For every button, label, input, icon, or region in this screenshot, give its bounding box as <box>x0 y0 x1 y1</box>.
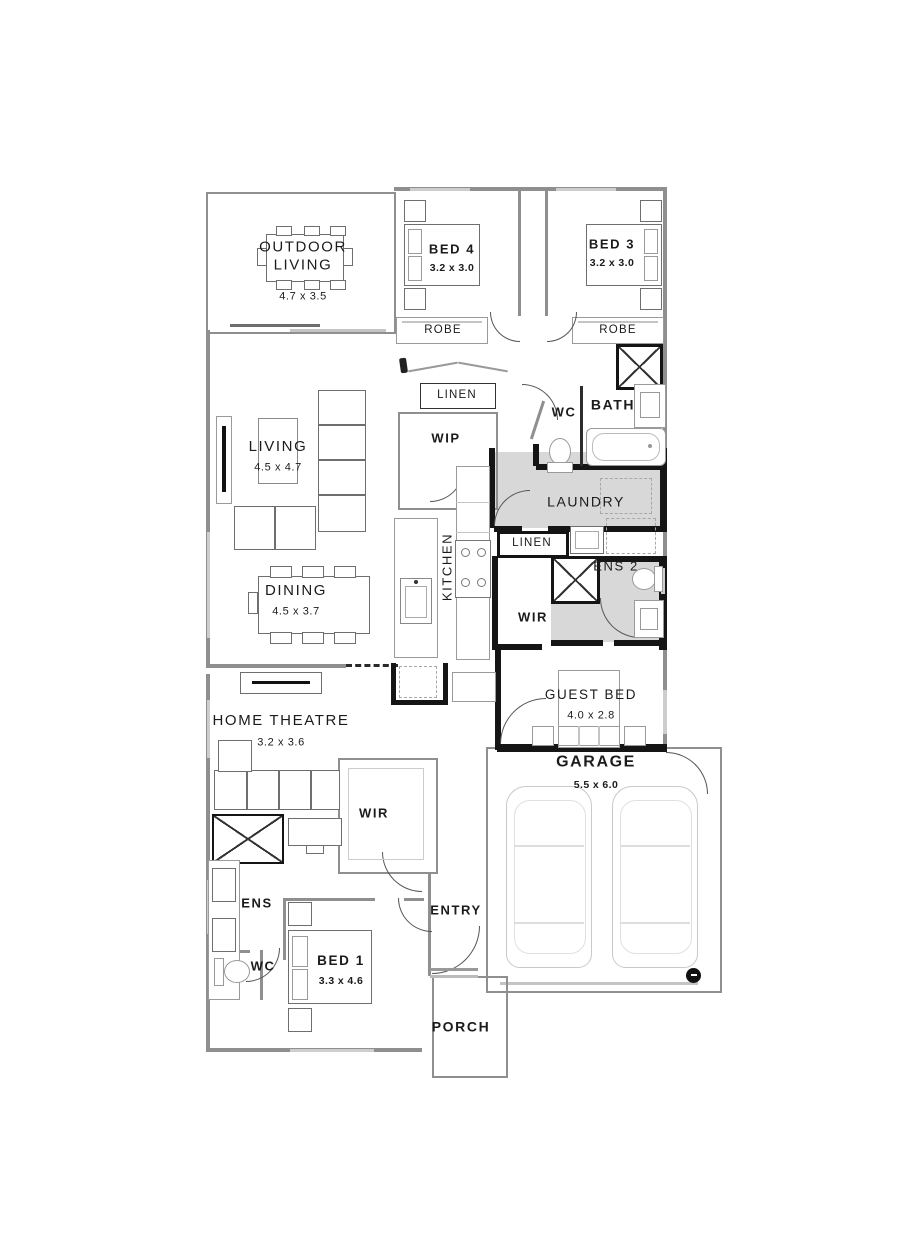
outdoor-chair <box>330 280 346 290</box>
cooktop <box>455 540 491 598</box>
window-guest-right <box>663 690 667 734</box>
dining-chair <box>334 566 356 578</box>
room-label-robe-bed4: ROBE <box>424 324 461 338</box>
window-living-left <box>207 532 210 638</box>
wall-right-mid <box>663 532 667 558</box>
bedside-table <box>404 288 426 310</box>
kitchen-bench-line <box>456 532 490 533</box>
island-tap <box>414 580 418 584</box>
floor-plan: OUTDOOR LIVING 4.7 x 3.5 BED 4 3.2 x 3.0… <box>0 0 901 1245</box>
room-dims-living: 4.5 x 4.7 <box>254 462 302 475</box>
wall-bed3-left <box>545 190 548 316</box>
car-left-windshield <box>514 845 584 847</box>
room-label-porch: PORCH <box>432 1019 491 1036</box>
door-arc-entry <box>432 926 480 974</box>
bedside-table <box>288 1008 312 1032</box>
dining-chair <box>270 632 292 644</box>
cooktop-burner <box>477 578 486 587</box>
entry-threshold-b <box>430 975 478 978</box>
island-sink-bowl <box>405 586 427 618</box>
hall-bench <box>452 672 496 702</box>
ens2-basin <box>640 608 658 630</box>
bedside-table <box>404 200 426 222</box>
room-label-living: LIVING <box>249 438 308 456</box>
bedside-table <box>624 726 646 746</box>
wall-ens-divider <box>283 898 286 960</box>
room-dims-home-theatre: 3.2 x 3.6 <box>257 737 305 750</box>
theatre-sofa-line <box>278 770 280 810</box>
room-label-garage: GARAGE <box>556 754 636 773</box>
door-arc-bed1 <box>398 898 432 932</box>
bedside-table <box>640 288 662 310</box>
cooktop-burner <box>477 548 486 557</box>
toilet-cistern-wc-main <box>547 462 573 473</box>
bedside-table <box>532 726 554 746</box>
room-dims-bed4: 3.2 x 3.0 <box>430 262 474 274</box>
wall-ens2-bottom-b <box>614 640 667 646</box>
wall-bed4-right <box>518 190 521 316</box>
room-label-wir-guest: WIR <box>518 609 548 624</box>
room-label-bed4: BED 4 <box>429 241 475 256</box>
linen-chevron-left <box>408 362 458 373</box>
wall-fridge-niche-bottom <box>391 700 448 705</box>
cooktop-burner <box>461 578 470 587</box>
theatre-tv <box>252 681 310 684</box>
guest-pillow-line <box>578 726 580 746</box>
outdoor-chair <box>304 226 320 236</box>
bed3-pillow <box>644 229 658 254</box>
bed3-pillow <box>644 256 658 281</box>
room-label-dining: DINING <box>265 582 327 600</box>
tv-living <box>222 426 226 492</box>
wall-theatre-divider <box>206 664 346 668</box>
toilet-cistern-ens2 <box>654 566 663 592</box>
toilet-cistern-wc-master <box>214 958 224 986</box>
car-right-rear-window <box>620 922 690 924</box>
room-label-kitchen: KITCHEN <box>439 533 454 601</box>
robe-bed4-shelf <box>402 321 482 323</box>
wall-wir-guest-left <box>492 556 498 648</box>
room-dims-outdoor-living: 4.7 x 3.5 <box>279 291 327 304</box>
bath-basin <box>640 392 660 418</box>
bed1-pillow <box>292 936 308 967</box>
guest-pillow-line <box>598 726 600 746</box>
dining-chair <box>334 632 356 644</box>
shower-ens-master <box>212 814 284 864</box>
theatre-sofa <box>214 770 340 810</box>
outdoor-chair <box>304 280 320 290</box>
room-dims-bed1: 3.3 x 4.6 <box>319 975 363 987</box>
window-theatre-left <box>207 700 210 758</box>
robe-bed3-shelf <box>578 321 658 323</box>
sofa-living-cushion-line <box>318 459 366 461</box>
room-dims-dining: 4.5 x 3.7 <box>272 606 320 619</box>
room-label-bed3: BED 3 <box>589 236 635 251</box>
bedside-table <box>640 200 662 222</box>
door-arc-bed4 <box>490 312 520 342</box>
room-label-home-theatre: HOME THEATRE <box>213 712 350 730</box>
outdoor-chair <box>330 226 346 236</box>
toilet-wc-master <box>224 960 250 983</box>
window-bed3-top <box>556 188 616 191</box>
ens-basin <box>212 868 236 902</box>
ens-cabinet <box>288 818 342 846</box>
wall-bath-wc-divider <box>580 386 583 466</box>
bathtub-drain <box>648 444 652 448</box>
theatre-sofa-line <box>246 770 248 810</box>
sofa-living-cushion-line <box>318 494 366 496</box>
laundry-trough-bowl <box>575 531 599 549</box>
wall-wc-nib <box>533 444 539 466</box>
room-label-guest-bed: GUEST BED <box>545 687 637 703</box>
window-bed1-bottom <box>290 1049 374 1052</box>
sofa-living <box>318 390 366 532</box>
smoke-alarm-symbol <box>399 358 408 374</box>
sofa-two-seat-line <box>274 506 276 550</box>
wall-fridge-niche-left <box>391 663 396 705</box>
outdoor-chair <box>276 226 292 236</box>
room-label-ens-master: ENS <box>241 895 273 910</box>
room-label-wip: WIP <box>431 430 460 445</box>
washing-machine-space <box>606 518 656 554</box>
room-label-bath: BATH <box>591 397 635 414</box>
wall-fridge-niche-right <box>443 663 448 705</box>
cooktop-burner <box>461 548 470 557</box>
ens-cabinet-nub <box>306 845 324 854</box>
room-label-linen-laundry: LINEN <box>512 537 552 551</box>
car-right-body <box>620 800 692 954</box>
room-label-entry: ENTRY <box>430 902 482 917</box>
dining-chair <box>302 632 324 644</box>
window-bed4-top <box>410 188 470 191</box>
linen-chevron-right <box>458 362 508 373</box>
dining-chair <box>248 592 258 614</box>
dining-chair <box>302 566 324 578</box>
room-label-outdoor-living: OUTDOOR LIVING <box>259 238 347 273</box>
bed4-pillow <box>408 229 422 254</box>
room-label-robe-bed3: ROBE <box>599 324 636 338</box>
room-label-wc-master: WC <box>251 958 276 973</box>
sliding-door-outdoor-a <box>230 324 320 327</box>
bed4-pillow <box>408 256 422 281</box>
guest-bed-pillow-band <box>558 726 620 746</box>
car-left-body <box>514 800 586 954</box>
room-label-bed1: BED 1 <box>317 953 365 969</box>
hot-water-unit-mark <box>691 974 697 976</box>
wall-bed1-top-a <box>283 898 375 901</box>
sofa-living-cushion-line <box>318 424 366 426</box>
wall-ens2-bottom-a <box>551 640 603 646</box>
bed1-pillow <box>292 969 308 1000</box>
sliding-door-outdoor-b <box>290 329 386 332</box>
room-label-laundry: LAUNDRY <box>547 494 625 511</box>
outdoor-chair <box>276 280 292 290</box>
room-label-wc-main: WC <box>552 404 577 419</box>
ens-basin <box>212 918 236 952</box>
entry-threshold-a <box>430 968 478 971</box>
room-label-ens2: ENS 2 <box>593 558 639 573</box>
car-left-rear-window <box>514 922 584 924</box>
room-label-wir-master: WIR <box>359 805 389 820</box>
room-dims-bed3: 3.2 x 3.0 <box>590 257 634 269</box>
room-dims-garage: 5.5 x 6.0 <box>574 779 618 791</box>
garage-door-line <box>500 982 698 985</box>
toilet-wc-main <box>549 438 571 465</box>
room-dims-guest-bed: 4.0 x 2.8 <box>567 710 615 723</box>
kitchen-bench-line <box>456 502 490 503</box>
theatre-chaise <box>218 740 252 772</box>
dining-chair <box>270 566 292 578</box>
room-label-linen-hall: LINEN <box>437 389 477 403</box>
theatre-sofa-line <box>310 770 312 810</box>
fridge-space <box>399 666 437 698</box>
car-right-windshield <box>620 845 690 847</box>
bedside-table <box>288 902 312 926</box>
